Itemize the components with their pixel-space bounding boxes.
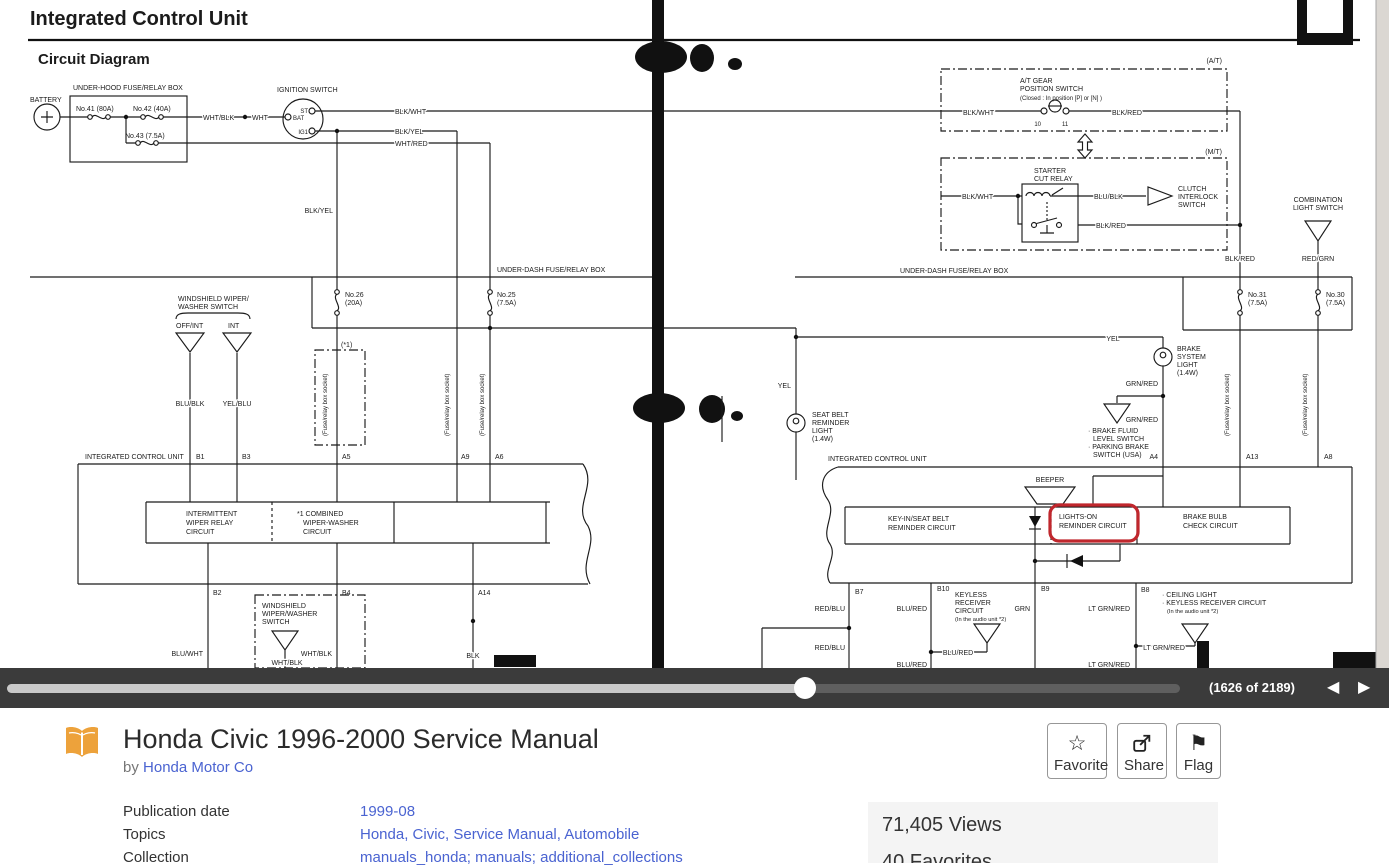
intermittent-label-2: WIPER RELAY [186, 520, 234, 527]
fuse31-label-1: No.31 [1248, 292, 1267, 299]
wire-red-blu-1: RED/BLU [815, 606, 845, 613]
ceiling-label-3: (In the audio unit *2) [1167, 609, 1218, 615]
wire-blk-red-3: BLK/RED [1225, 256, 1255, 263]
wiper-int-label: INT [228, 323, 240, 330]
beeper-label: BEEPER [1036, 477, 1064, 484]
icu-left-label: INTEGRATED CONTROL UNIT [85, 454, 185, 461]
ign-bat: BAT [293, 116, 305, 122]
icu-right-label: INTEGRATED CONTROL UNIT [828, 456, 928, 463]
underdash-left-label: UNDER-DASH FUSE/RELAY BOX [497, 267, 606, 274]
fuse42-label: No.42 (40A) [133, 106, 171, 113]
book-title: Honda Civic 1996-2000 Service Manual [123, 724, 599, 755]
wire-blk-wht-3: BLK/WHT [962, 194, 994, 201]
socket-label-1: (Fuse/relay box socket) [323, 374, 329, 436]
brakelight-label-3: LIGHT [1177, 362, 1198, 369]
topics-links[interactable]: Honda, Civic, Service Manual, Automobile [360, 826, 639, 843]
lightson-label-2: REMINDER CIRCUIT [1059, 523, 1127, 530]
share-icon [1124, 731, 1160, 757]
metadata-row-topics: Topics Honda, Civic, Service Manual, Aut… [123, 826, 166, 843]
seatbelt-label-4: (1.4W) [812, 436, 833, 443]
term-a4: A4 [1149, 454, 1158, 461]
book-icon [62, 723, 102, 763]
fuse30-label-1: No.30 [1326, 292, 1345, 299]
wire-blk-wht-1: BLK/WHT [395, 109, 427, 116]
wire-blk-red-2: BLK/RED [1096, 223, 1126, 230]
book-spine-artifact [633, 0, 743, 668]
scan-edge-marks [494, 641, 1389, 668]
term-b4: B4 [342, 590, 351, 597]
battery-label: BATTERY [30, 97, 62, 104]
underhood-box-label: UNDER-HOOD FUSE/RELAY BOX [73, 85, 183, 92]
share-button[interactable]: Share [1117, 723, 1167, 779]
wire-wht-red: WHT/RED [395, 141, 428, 148]
views-count: 71,405 Views [882, 812, 1218, 838]
viewer-navbar: (1626 of 2189) ◀ ▶ [0, 668, 1389, 708]
wire-blk: BLK [466, 653, 480, 660]
term-b7: B7 [855, 589, 864, 596]
ignition-switch-label: IGNITION SWITCH [277, 87, 338, 94]
intermittent-label-1: INTERMITTENT [186, 511, 238, 518]
flag-button[interactable]: ⚑ Flag [1176, 723, 1221, 779]
ceiling-label-2: · KEYLESS RECEIVER CIRCUIT [1162, 600, 1267, 607]
keyless-label-1: KEYLESS [955, 592, 987, 599]
seatbelt-label-1: SEAT BELT [812, 412, 849, 419]
wire-grn: GRN [1014, 606, 1030, 613]
wire-blu-red-1: BLU/RED [897, 606, 927, 613]
publication-date-link[interactable]: 1999-08 [360, 803, 415, 820]
brakelight-label-2: SYSTEM [1177, 354, 1206, 361]
term-b8: B8 [1141, 587, 1150, 594]
term-a6: A6 [495, 454, 504, 461]
keyin-label-1: KEY-IN/SEAT BELT [888, 516, 950, 523]
ceiling-label-1: · CEILING LIGHT [1162, 592, 1218, 599]
keyless-label-3: CIRCUIT [955, 608, 984, 615]
at-switch-label-2: POSITION SWITCH [1020, 86, 1083, 93]
term-b10: B10 [937, 586, 950, 593]
wire-blk-yel-1: BLK/YEL [395, 129, 424, 136]
mt-tag: (M/T) [1205, 149, 1222, 156]
wire-blu-wht: BLU/WHT [172, 651, 204, 658]
socket-label-3: (Fuse/relay box socket) [480, 374, 486, 436]
beeper-symbol [1025, 487, 1075, 504]
collection-links[interactable]: manuals_honda; manuals; additional_colle… [360, 849, 683, 866]
fuse26-label-1: No.26 [345, 292, 364, 299]
wiper-switch-bracket [176, 313, 250, 319]
combined-label-3: CIRCUIT [303, 529, 332, 536]
term-b2: B2 [213, 590, 222, 597]
wire-yel-blu: YEL/BLU [223, 401, 252, 408]
wire-ltgrnred-1: LT GRN/RED [1088, 606, 1130, 613]
at-mt-toggle-arrow [1078, 134, 1092, 158]
fuse25-label-1: No.25 [497, 292, 516, 299]
wire-yel-2: YEL [1106, 336, 1119, 343]
wire-blk-wht-2: BLK/WHT [963, 110, 995, 117]
fuse43-label: No.43 (7.5A) [125, 133, 165, 140]
combo-label-1: COMBINATION [1294, 197, 1343, 204]
flag-button-label: Flag [1183, 757, 1214, 774]
at-tag: (A/T) [1206, 58, 1222, 65]
combined-label-1: *1 COMBINED [297, 511, 343, 518]
dashed-option-boxes [255, 69, 1227, 668]
starter-relay-label-1: STARTER [1034, 168, 1066, 175]
at-term-11: 11 [1062, 122, 1069, 128]
metadata-row-collection: Collection manuals_honda; manuals; addit… [123, 849, 189, 866]
wire-red-grn: RED/GRN [1302, 256, 1334, 263]
intermittent-label-3: CIRCUIT [186, 529, 215, 536]
clutch-label-1: CLUTCH [1178, 186, 1206, 193]
term-b1: B1 [196, 454, 205, 461]
wire-blk-yel-2: BLK/YEL [305, 208, 334, 215]
brakefluid-label-1: · BRAKE FLUID [1088, 428, 1138, 435]
wire-grn-red-2: GRN/RED [1126, 417, 1158, 424]
socket-label-4: (Fuse/relay box socket) [1225, 374, 1231, 436]
previous-page-icon[interactable]: ◀ [1327, 668, 1339, 708]
favorite-button-label: Favorite [1054, 757, 1100, 774]
at-switch-label-3: (Closed : In position [P] or [N] ) [1020, 96, 1102, 102]
favorite-button[interactable]: ☆ Favorite [1047, 723, 1107, 779]
page-heading: Integrated Control Unit [30, 8, 248, 30]
seatbelt-label-2: REMINDER [812, 420, 849, 427]
brakefluid-label-4: SWITCH (USA) [1093, 452, 1142, 459]
metadata-row-publication-date: Publication date 1999-08 [123, 803, 230, 820]
at-term-10: 10 [1034, 122, 1041, 128]
wire-red-blu-2: RED/BLU [815, 645, 845, 652]
by-label: by [123, 759, 139, 776]
favorites-count-partial: 40 Favorites [882, 849, 1218, 863]
term-a8: A8 [1324, 454, 1333, 461]
fuse26-label-2: (20A) [345, 300, 362, 307]
wire-blk-red-1: BLK/RED [1112, 110, 1142, 117]
flag-icon: ⚑ [1183, 731, 1214, 757]
star-icon: ☆ [1054, 731, 1100, 757]
fuse31-label-2: (7.5A) [1248, 300, 1267, 307]
clutch-label-3: SWITCH [1178, 202, 1206, 209]
fuse30-label-2: (7.5A) [1326, 300, 1345, 307]
lightson-label-1: LIGHTS-ON [1059, 514, 1097, 521]
relay-coil-and-contact [1026, 193, 1062, 228]
term-a9: A9 [461, 454, 470, 461]
at-switch-label-1: A/T GEAR [1020, 78, 1053, 85]
socket-label-2: (Fuse/relay box socket) [445, 374, 451, 436]
wire-ltgrnred-2: LT GRN/RED [1143, 645, 1185, 652]
page-slider-track[interactable] [7, 684, 1180, 693]
wire-yel-1: YEL [778, 383, 791, 390]
page-slider-handle[interactable] [794, 677, 816, 699]
book-byline: by Honda Motor Co [123, 759, 253, 776]
metadata-label: Topics [123, 826, 166, 843]
at-gear-switch-symbol [1041, 100, 1069, 114]
wire-grn-red-1: GRN/RED [1126, 381, 1158, 388]
keyless-label-4: (In the audio unit *2) [955, 617, 1006, 623]
wire-blu-red-2: BLU/RED [943, 650, 973, 657]
windshield-label-3: SWITCH [262, 619, 290, 626]
metadata-label: Collection [123, 849, 189, 866]
wire-wht-blk-3: WHT/BLK [301, 651, 332, 658]
wiper-offint-label: OFF/INT [176, 323, 204, 330]
term-b9: B9 [1041, 586, 1050, 593]
wire-wht-blk-2: WHT/BLK [271, 660, 302, 667]
underdash-right-label: UNDER-DASH FUSE/RELAY BOX [900, 268, 1009, 275]
page-slider-fill [7, 684, 805, 693]
clutch-label-2: INTERLOCK [1178, 194, 1218, 201]
term-b3: B3 [242, 454, 251, 461]
wire-blu-blk: BLU/BLK [1094, 194, 1123, 201]
windshield-label-2: WIPER/WASHER [262, 611, 317, 618]
stats-panel: 71,405 Views 40 Favorites [868, 802, 1218, 863]
term-a14: A14 [478, 590, 491, 597]
fuse25-label-2: (7.5A) [497, 300, 516, 307]
wire-wht: WHT [252, 115, 269, 122]
page-indicator: (1626 of 2189) [1188, 668, 1316, 708]
combined-label-2: WIPER-WASHER [303, 520, 359, 527]
socket-label-5: (Fuse/relay box socket) [1303, 374, 1309, 436]
combo-label-2: LIGHT SWITCH [1293, 205, 1343, 212]
wire-blu-blk-2: BLU/BLK [176, 401, 205, 408]
next-page-edge [1376, 0, 1389, 668]
brakefluid-label-2: LEVEL SWITCH [1093, 436, 1144, 443]
wiper-switch-label-1: WINDSHIELD WIPER/ [178, 296, 249, 303]
seatbelt-label-3: LIGHT [812, 428, 833, 435]
next-page-icon[interactable]: ▶ [1358, 668, 1370, 708]
fuse41-label: No.41 (80A) [76, 106, 114, 113]
page-corner-mark [1297, 0, 1353, 45]
circuit-diagram-page: Integrated Control UnitCircuit DiagramBA… [0, 0, 1389, 668]
brakefluid-label-3: · PARKING BRAKE [1088, 444, 1149, 451]
share-button-label: Share [1124, 757, 1160, 774]
ign-st: ST [300, 109, 308, 115]
term-a13: A13 [1246, 454, 1259, 461]
brakebulb-label-1: BRAKE BULB [1183, 514, 1227, 521]
wiper-switch-label-2: WASHER SWITCH [178, 304, 238, 311]
fuse-symbols [88, 115, 1321, 316]
author-link[interactable]: Honda Motor Co [143, 759, 253, 776]
windshield-label-1: WINDSHIELD [262, 603, 306, 610]
metadata-label: Publication date [123, 803, 230, 820]
keyin-label-2: REMINDER CIRCUIT [888, 525, 956, 532]
battery-symbol [34, 104, 60, 130]
brakelight-label-1: BRAKE [1177, 346, 1201, 353]
wire-wht-blk: WHT/BLK [203, 115, 234, 122]
term-a5: A5 [342, 454, 351, 461]
ign-ig1: IG1 [298, 130, 308, 136]
brakebulb-label-2: CHECK CIRCUIT [1183, 523, 1239, 530]
section-heading: Circuit Diagram [38, 51, 150, 68]
starter-relay-label-2: CUT RELAY [1034, 176, 1073, 183]
keyless-label-2: RECEIVER [955, 600, 991, 607]
brakelight-label-4: (1.4W) [1177, 370, 1198, 377]
optional-box-label: (*1) [341, 342, 352, 349]
